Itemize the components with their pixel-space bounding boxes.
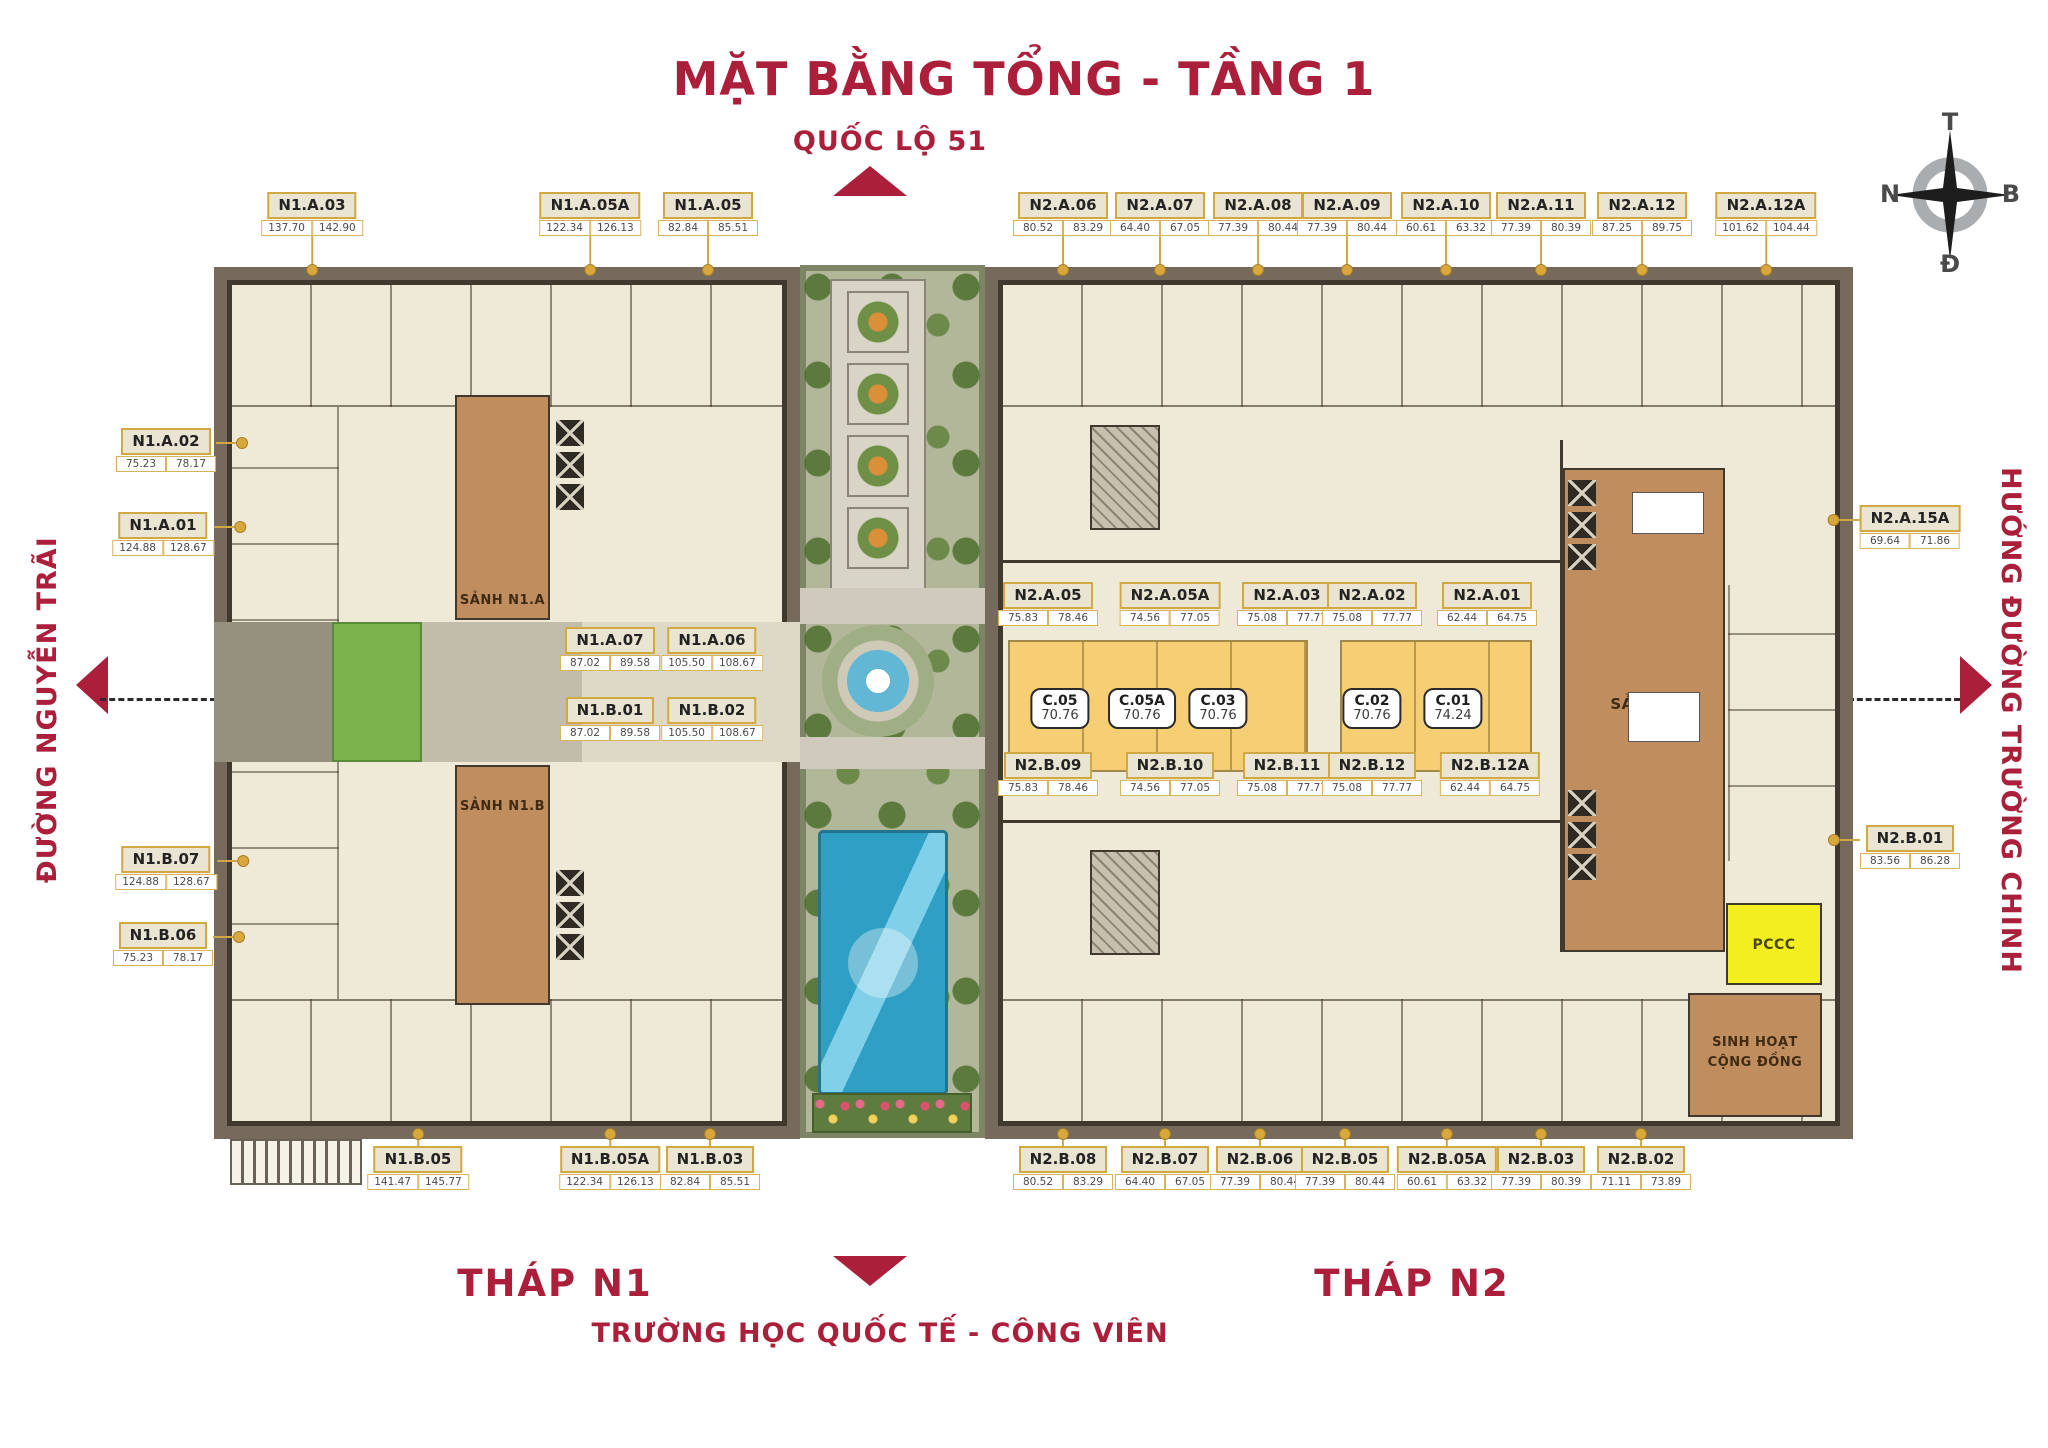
unit-area-value: 80.39 [1541, 1174, 1591, 1190]
unit-area-value: 80.44 [1347, 220, 1397, 236]
unit-id: N1.B.06 [119, 922, 208, 949]
unit-area-value: 87.02 [560, 655, 610, 671]
unit-area-value: 128.67 [166, 874, 217, 890]
unit-badge: N2.B.1074.5677.05 [1120, 752, 1220, 796]
unit-badge: N2.A.0162.4464.75 [1437, 582, 1537, 626]
unit-area-value: 62.44 [1437, 610, 1487, 626]
unit-id: N2.B.08 [1019, 1146, 1108, 1173]
unit-id: N2.A.02 [1327, 582, 1416, 609]
unit-badge: N2.B.05A60.6163.32 [1397, 1146, 1497, 1190]
unit-areas: 62.4464.75 [1437, 610, 1537, 626]
unit-area-value: 104.44 [1766, 220, 1817, 236]
unit-area-value: 78.17 [166, 456, 216, 472]
unit-badge: N2.A.0575.8378.46 [998, 582, 1098, 626]
unit-id: N2.A.09 [1302, 192, 1391, 219]
unit-areas: 124.88128.67 [115, 874, 217, 890]
leader-line [1641, 236, 1643, 270]
unit-areas: 75.0877.77 [1322, 610, 1422, 626]
leader-line [1640, 1134, 1642, 1146]
shop-unit-badge: C.0174.24 [1423, 688, 1482, 729]
leader-line [707, 236, 709, 270]
unit-id: N2.B.01 [1866, 825, 1955, 852]
unit-area-value: 60.61 [1397, 1174, 1447, 1190]
unit-id: N2.A.05 [1003, 582, 1092, 609]
unit-area-value: 89.58 [610, 655, 660, 671]
leader-line [311, 236, 313, 270]
unit-area-value: 82.84 [660, 1174, 710, 1190]
unit-area-value: 80.44 [1345, 1174, 1395, 1190]
unit-badge: N2.B.0764.4067.05 [1115, 1146, 1215, 1190]
unit-id: N1.B.01 [566, 697, 655, 724]
unit-area-value: 77.39 [1491, 220, 1541, 236]
unit-areas: 75.8378.46 [998, 610, 1098, 626]
unit-area-value: 80.52 [1013, 1174, 1063, 1190]
unit-area-value: 137.70 [261, 220, 312, 236]
unit-area-value: 122.34 [539, 220, 590, 236]
unit-areas: 87.0289.58 [560, 655, 660, 671]
unit-id: N1.B.07 [122, 846, 211, 873]
unit-area-value: 77.77 [1372, 610, 1422, 626]
unit-area-value: 77.39 [1295, 1174, 1345, 1190]
unit-areas: 80.5283.29 [1013, 1174, 1113, 1190]
shop-unit-badge: C.05A70.76 [1108, 688, 1176, 729]
unit-area-value: 64.40 [1115, 1174, 1165, 1190]
leader-line [1446, 1134, 1448, 1146]
unit-area-value: 75.83 [998, 610, 1048, 626]
unit-area-value: 78.46 [1048, 780, 1098, 796]
unit-id: N2.B.12A [1440, 752, 1540, 779]
unit-id: N2.B.02 [1597, 1146, 1686, 1173]
unit-areas: 77.3980.44 [1295, 1174, 1395, 1190]
unit-badge: N2.A.12A101.62104.44 [1715, 192, 1817, 236]
unit-id: N2.B.10 [1126, 752, 1215, 779]
unit-badge: N2.B.0271.1173.89 [1591, 1146, 1691, 1190]
unit-areas: 60.6163.32 [1397, 1174, 1497, 1190]
shop-unit-badge: C.0270.76 [1342, 688, 1401, 729]
unit-badge: N1.A.0787.0289.58 [560, 627, 660, 671]
leader-line [709, 1134, 711, 1146]
unit-area-value: 67.05 [1165, 1174, 1215, 1190]
unit-area-value: 75.83 [998, 780, 1048, 796]
unit-badge: N2.B.1275.0877.77 [1322, 752, 1422, 796]
unit-area-value: 128.67 [163, 540, 214, 556]
unit-id: N2.B.09 [1004, 752, 1093, 779]
unit-area-value: 83.29 [1063, 1174, 1113, 1190]
unit-area-value: 101.62 [1715, 220, 1766, 236]
unit-id: N2.B.05 [1301, 1146, 1390, 1173]
unit-areas: 137.70142.90 [261, 220, 363, 236]
unit-areas: 75.2378.17 [116, 456, 216, 472]
unit-areas: 77.3980.44 [1297, 220, 1397, 236]
unit-id: N1.B.03 [666, 1146, 755, 1173]
unit-area-value: 105.50 [661, 725, 712, 741]
unit-area-value: 67.05 [1160, 220, 1210, 236]
unit-badge: N1.A.0275.2378.17 [116, 428, 216, 472]
unit-area-value: 71.11 [1591, 1174, 1641, 1190]
leader-line [1445, 236, 1447, 270]
unit-badge: N2.A.0764.4067.05 [1110, 192, 1210, 236]
unit-areas: 105.50108.67 [661, 655, 763, 671]
unit-badge: N1.B.05A122.34126.13 [559, 1146, 661, 1190]
leader-line [213, 936, 239, 938]
unit-areas: 122.34126.13 [539, 220, 641, 236]
unit-areas: 75.2378.17 [113, 950, 213, 966]
unit-id: N1.B.02 [668, 697, 757, 724]
unit-badge: N1.B.0675.2378.17 [113, 922, 213, 966]
unit-id: N2.B.11 [1243, 752, 1332, 779]
leader-line [1344, 1134, 1346, 1146]
unit-area-value: 75.23 [116, 456, 166, 472]
unit-area-value: 80.39 [1541, 220, 1591, 236]
unit-id: N1.A.05A [540, 192, 641, 219]
unit-area-value: 85.51 [710, 1174, 760, 1190]
unit-area-value: 124.88 [115, 874, 166, 890]
unit-area-value: 60.61 [1396, 220, 1446, 236]
leader-line [1834, 519, 1860, 521]
unit-id: N1.B.05 [374, 1146, 463, 1173]
unit-area-value: 83.56 [1860, 853, 1910, 869]
unit-badge: N1.A.0582.8485.51 [658, 192, 758, 236]
unit-badge: N2.B.12A62.4464.75 [1440, 752, 1540, 796]
unit-badge: N2.B.0975.8378.46 [998, 752, 1098, 796]
leader-line [1346, 236, 1348, 270]
unit-badge-layer: N1.A.03137.70142.90N1.A.05A122.34126.13N… [0, 0, 2048, 1448]
leader-line [1159, 236, 1161, 270]
unit-areas: 82.8485.51 [660, 1174, 760, 1190]
leader-line [217, 860, 243, 862]
unit-id: N2.A.01 [1442, 582, 1531, 609]
unit-area-value: 75.08 [1322, 780, 1372, 796]
unit-area-value: 75.08 [1322, 610, 1372, 626]
unit-area-value: 89.58 [610, 725, 660, 741]
unit-areas: 77.3980.39 [1491, 1174, 1591, 1190]
unit-areas: 75.0877.77 [1322, 780, 1422, 796]
unit-areas: 71.1173.89 [1591, 1174, 1691, 1190]
unit-area-value: 122.34 [559, 1174, 610, 1190]
shop-unit-area: 70.76 [1119, 709, 1165, 724]
leader-line [609, 1134, 611, 1146]
unit-badge: N2.B.0377.3980.39 [1491, 1146, 1591, 1190]
unit-badge: N2.A.1177.3980.39 [1491, 192, 1591, 236]
unit-area-value: 85.51 [708, 220, 758, 236]
unit-area-value: 75.23 [113, 950, 163, 966]
unit-areas: 80.5283.29 [1013, 220, 1113, 236]
shop-unit-id: C.05A [1119, 693, 1165, 709]
unit-id: N2.B.05A [1397, 1146, 1497, 1173]
unit-badge: N1.A.03137.70142.90 [261, 192, 363, 236]
unit-area-value: 141.47 [367, 1174, 418, 1190]
shop-unit-area: 70.76 [1353, 709, 1390, 724]
shop-unit-area: 74.24 [1434, 709, 1471, 724]
unit-badge: N2.A.0877.3980.44 [1208, 192, 1308, 236]
unit-areas: 77.3980.39 [1491, 220, 1591, 236]
unit-id: N2.A.05A [1120, 582, 1221, 609]
unit-badge: N2.B.0880.5283.29 [1013, 1146, 1113, 1190]
unit-area-value: 74.56 [1120, 780, 1170, 796]
leader-line [1164, 1134, 1166, 1146]
unit-area-value: 77.05 [1170, 780, 1220, 796]
unit-areas: 122.34126.13 [559, 1174, 661, 1190]
unit-area-value: 145.77 [418, 1174, 469, 1190]
unit-area-value: 142.90 [312, 220, 363, 236]
leader-line [1540, 236, 1542, 270]
leader-line [1834, 839, 1860, 841]
leader-line [1259, 1134, 1261, 1146]
unit-area-value: 63.32 [1446, 220, 1496, 236]
unit-badge: N1.B.07124.88128.67 [115, 846, 217, 890]
unit-area-value: 77.39 [1208, 220, 1258, 236]
leader-line [214, 526, 240, 528]
unit-areas: 82.8485.51 [658, 220, 758, 236]
unit-badge: N2.A.1287.2589.75 [1592, 192, 1692, 236]
unit-id: N2.A.12A [1716, 192, 1817, 219]
unit-area-value: 63.32 [1447, 1174, 1497, 1190]
shop-unit-area: 70.76 [1041, 709, 1078, 724]
unit-area-value: 77.39 [1210, 1174, 1260, 1190]
unit-area-value: 87.02 [560, 725, 610, 741]
unit-area-value: 64.75 [1490, 780, 1540, 796]
shop-unit-badge: C.0370.76 [1188, 688, 1247, 729]
unit-areas: 69.6471.86 [1860, 533, 1961, 549]
unit-area-value: 73.89 [1641, 1174, 1691, 1190]
unit-badge: N2.A.1060.6163.32 [1396, 192, 1496, 236]
unit-area-value: 64.40 [1110, 220, 1160, 236]
unit-id: N2.A.06 [1018, 192, 1107, 219]
unit-badge: N2.A.15A69.6471.86 [1860, 505, 1961, 549]
unit-badge: N2.B.0183.5686.28 [1860, 825, 1960, 869]
unit-area-value: 124.88 [112, 540, 163, 556]
shop-unit-id: C.02 [1353, 693, 1390, 709]
unit-areas: 62.4464.75 [1440, 780, 1540, 796]
shop-unit-badge: C.0570.76 [1030, 688, 1089, 729]
unit-areas: 64.4067.05 [1115, 1174, 1215, 1190]
unit-id: N2.B.12 [1328, 752, 1417, 779]
floor-plan-page: MẶT BẰNG TỔNG - TẦNG 1 QUỐC LỘ 51 ĐƯỜNG … [0, 0, 2048, 1448]
unit-areas: 64.4067.05 [1110, 220, 1210, 236]
unit-areas: 105.50108.67 [661, 725, 763, 741]
unit-id: N1.A.01 [118, 512, 207, 539]
unit-id: N2.A.07 [1115, 192, 1204, 219]
unit-area-value: 71.86 [1910, 533, 1960, 549]
unit-areas: 60.6163.32 [1396, 220, 1496, 236]
unit-id: N2.A.15A [1860, 505, 1961, 532]
unit-areas: 87.2589.75 [1592, 220, 1692, 236]
shop-unit-id: C.05 [1041, 693, 1078, 709]
unit-area-value: 126.13 [610, 1174, 661, 1190]
unit-id: N2.A.03 [1242, 582, 1331, 609]
unit-area-value: 62.44 [1440, 780, 1490, 796]
unit-badge: N2.A.05A74.5677.05 [1120, 582, 1221, 626]
unit-area-value: 77.05 [1170, 610, 1220, 626]
leader-line [417, 1134, 419, 1146]
unit-area-value: 83.29 [1063, 220, 1113, 236]
unit-area-value: 108.67 [712, 655, 763, 671]
unit-area-value: 80.52 [1013, 220, 1063, 236]
unit-areas: 77.3980.44 [1208, 220, 1308, 236]
leader-line [589, 236, 591, 270]
unit-area-value: 69.64 [1860, 533, 1910, 549]
unit-area-value: 74.56 [1120, 610, 1170, 626]
unit-area-value: 108.67 [712, 725, 763, 741]
unit-id: N2.B.06 [1216, 1146, 1305, 1173]
unit-badge: N2.A.0680.5283.29 [1013, 192, 1113, 236]
unit-area-value: 78.46 [1048, 610, 1098, 626]
unit-area-value: 77.39 [1491, 1174, 1541, 1190]
unit-badge: N1.B.0382.8485.51 [660, 1146, 760, 1190]
unit-badge: N2.A.0275.0877.77 [1322, 582, 1422, 626]
unit-areas: 87.0289.58 [560, 725, 660, 741]
unit-id: N2.B.07 [1121, 1146, 1210, 1173]
unit-area-value: 105.50 [661, 655, 712, 671]
unit-id: N2.A.08 [1213, 192, 1302, 219]
unit-badge: N1.A.06105.50108.67 [661, 627, 763, 671]
unit-areas: 124.88128.67 [112, 540, 214, 556]
unit-area-value: 64.75 [1487, 610, 1537, 626]
unit-area-value: 77.77 [1372, 780, 1422, 796]
unit-id: N1.A.05 [663, 192, 752, 219]
unit-badge: N2.A.0977.3980.44 [1297, 192, 1397, 236]
unit-badge: N1.A.01124.88128.67 [112, 512, 214, 556]
unit-id: N1.A.02 [121, 428, 210, 455]
unit-id: N1.A.06 [667, 627, 756, 654]
unit-area-value: 75.08 [1237, 780, 1287, 796]
unit-areas: 75.8378.46 [998, 780, 1098, 796]
unit-area-value: 87.25 [1592, 220, 1642, 236]
unit-badge: N1.B.02105.50108.67 [661, 697, 763, 741]
unit-badge: N1.A.05A122.34126.13 [539, 192, 641, 236]
unit-id: N1.A.07 [565, 627, 654, 654]
unit-areas: 101.62104.44 [1715, 220, 1817, 236]
unit-areas: 74.5677.05 [1120, 780, 1220, 796]
leader-line [1062, 236, 1064, 270]
unit-id: N2.A.10 [1401, 192, 1490, 219]
unit-area-value: 86.28 [1910, 853, 1960, 869]
unit-id: N2.B.03 [1497, 1146, 1586, 1173]
leader-line [216, 442, 242, 444]
shop-unit-id: C.01 [1434, 693, 1471, 709]
unit-id: N2.A.11 [1496, 192, 1585, 219]
unit-areas: 74.5677.05 [1120, 610, 1221, 626]
unit-area-value: 77.39 [1297, 220, 1347, 236]
unit-areas: 141.47145.77 [367, 1174, 469, 1190]
unit-badge: N1.B.05141.47145.77 [367, 1146, 469, 1190]
unit-area-value: 75.08 [1237, 610, 1287, 626]
unit-area-value: 78.17 [163, 950, 213, 966]
shop-unit-area: 70.76 [1199, 709, 1236, 724]
unit-badge: N2.B.0577.3980.44 [1295, 1146, 1395, 1190]
unit-id: N1.A.03 [267, 192, 356, 219]
unit-badge: N1.B.0187.0289.58 [560, 697, 660, 741]
shop-unit-id: C.03 [1199, 693, 1236, 709]
unit-area-value: 82.84 [658, 220, 708, 236]
leader-line [1765, 236, 1767, 270]
leader-line [1257, 236, 1259, 270]
unit-area-value: 126.13 [590, 220, 641, 236]
unit-id: N1.B.05A [560, 1146, 660, 1173]
unit-areas: 83.5686.28 [1860, 853, 1960, 869]
unit-area-value: 89.75 [1642, 220, 1692, 236]
leader-line [1540, 1134, 1542, 1146]
leader-line [1062, 1134, 1064, 1146]
unit-id: N2.A.12 [1597, 192, 1686, 219]
